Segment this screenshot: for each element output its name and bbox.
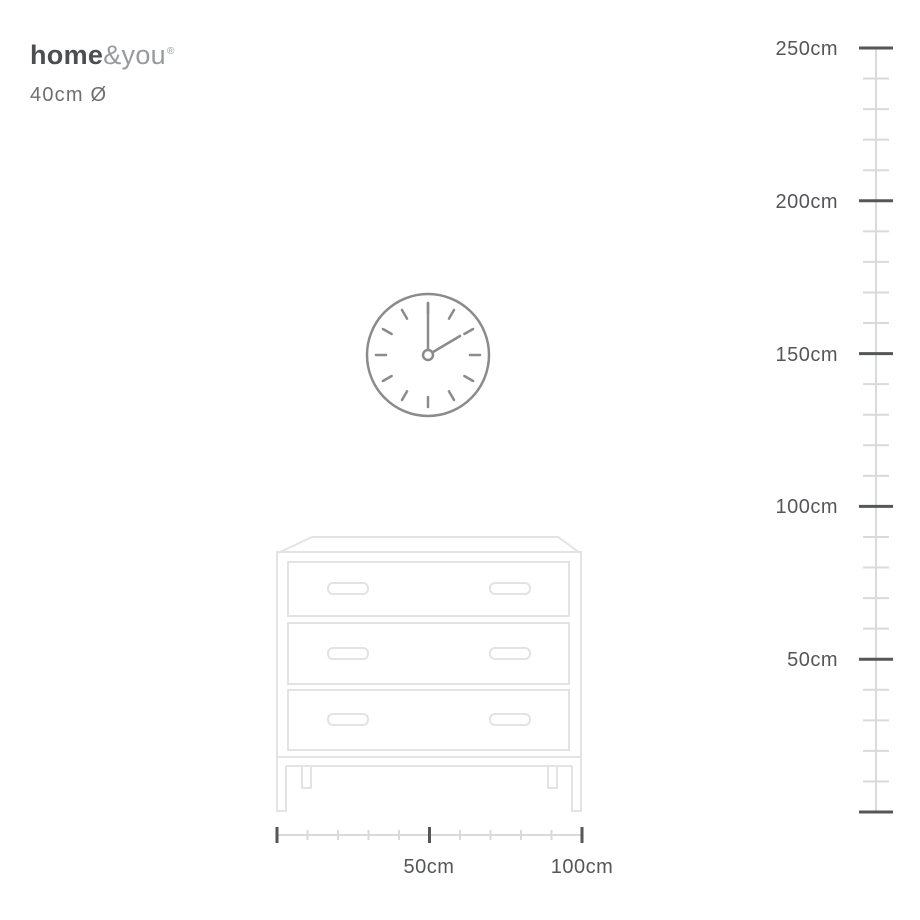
- dresser-top-edge: [278, 537, 580, 553]
- drawer-handle: [490, 714, 530, 725]
- product-dimension-diagram: home&you® 40cm Ø 250cm 200cm 150cm 100cm…: [0, 0, 920, 920]
- dresser-drawer-3: [288, 690, 569, 750]
- scene-graphic: 250cm 200cm 150cm 100cm 50cm 50cm 100cm: [0, 0, 920, 920]
- horizontal-ruler-labels: 50cm 100cm: [404, 856, 614, 878]
- drawer-handle: [328, 648, 368, 659]
- drawer-handle: [490, 648, 530, 659]
- vertical-ruler-labels: 250cm 200cm 150cm 100cm 50cm: [775, 38, 838, 671]
- clock-center-pin: [423, 350, 433, 360]
- horizontal-ruler-label: 100cm: [551, 856, 614, 878]
- vertical-ruler-label: 100cm: [775, 496, 838, 518]
- vertical-ruler-label: 50cm: [787, 649, 838, 671]
- drawer-handle: [328, 714, 368, 725]
- dresser-left-leg: [277, 757, 286, 811]
- vertical-ruler-label: 250cm: [775, 38, 838, 60]
- vertical-ruler-label: 200cm: [775, 191, 838, 213]
- horizontal-ruler: [277, 827, 582, 843]
- drawer-handle: [328, 583, 368, 594]
- dresser-drawer-1: [288, 562, 569, 616]
- dresser-illustration: [277, 537, 581, 811]
- horizontal-ruler-label: 50cm: [404, 856, 455, 878]
- vertical-ruler-label: 150cm: [775, 344, 838, 366]
- dresser-drawer-2: [288, 623, 569, 684]
- dresser-body: [277, 552, 581, 757]
- dresser-right-leg: [572, 757, 581, 811]
- dresser-inner-right-leg: [548, 766, 557, 788]
- vertical-ruler: [859, 48, 893, 812]
- wall-clock: [367, 294, 489, 416]
- drawer-handle: [490, 583, 530, 594]
- dresser-inner-left-leg: [302, 766, 311, 788]
